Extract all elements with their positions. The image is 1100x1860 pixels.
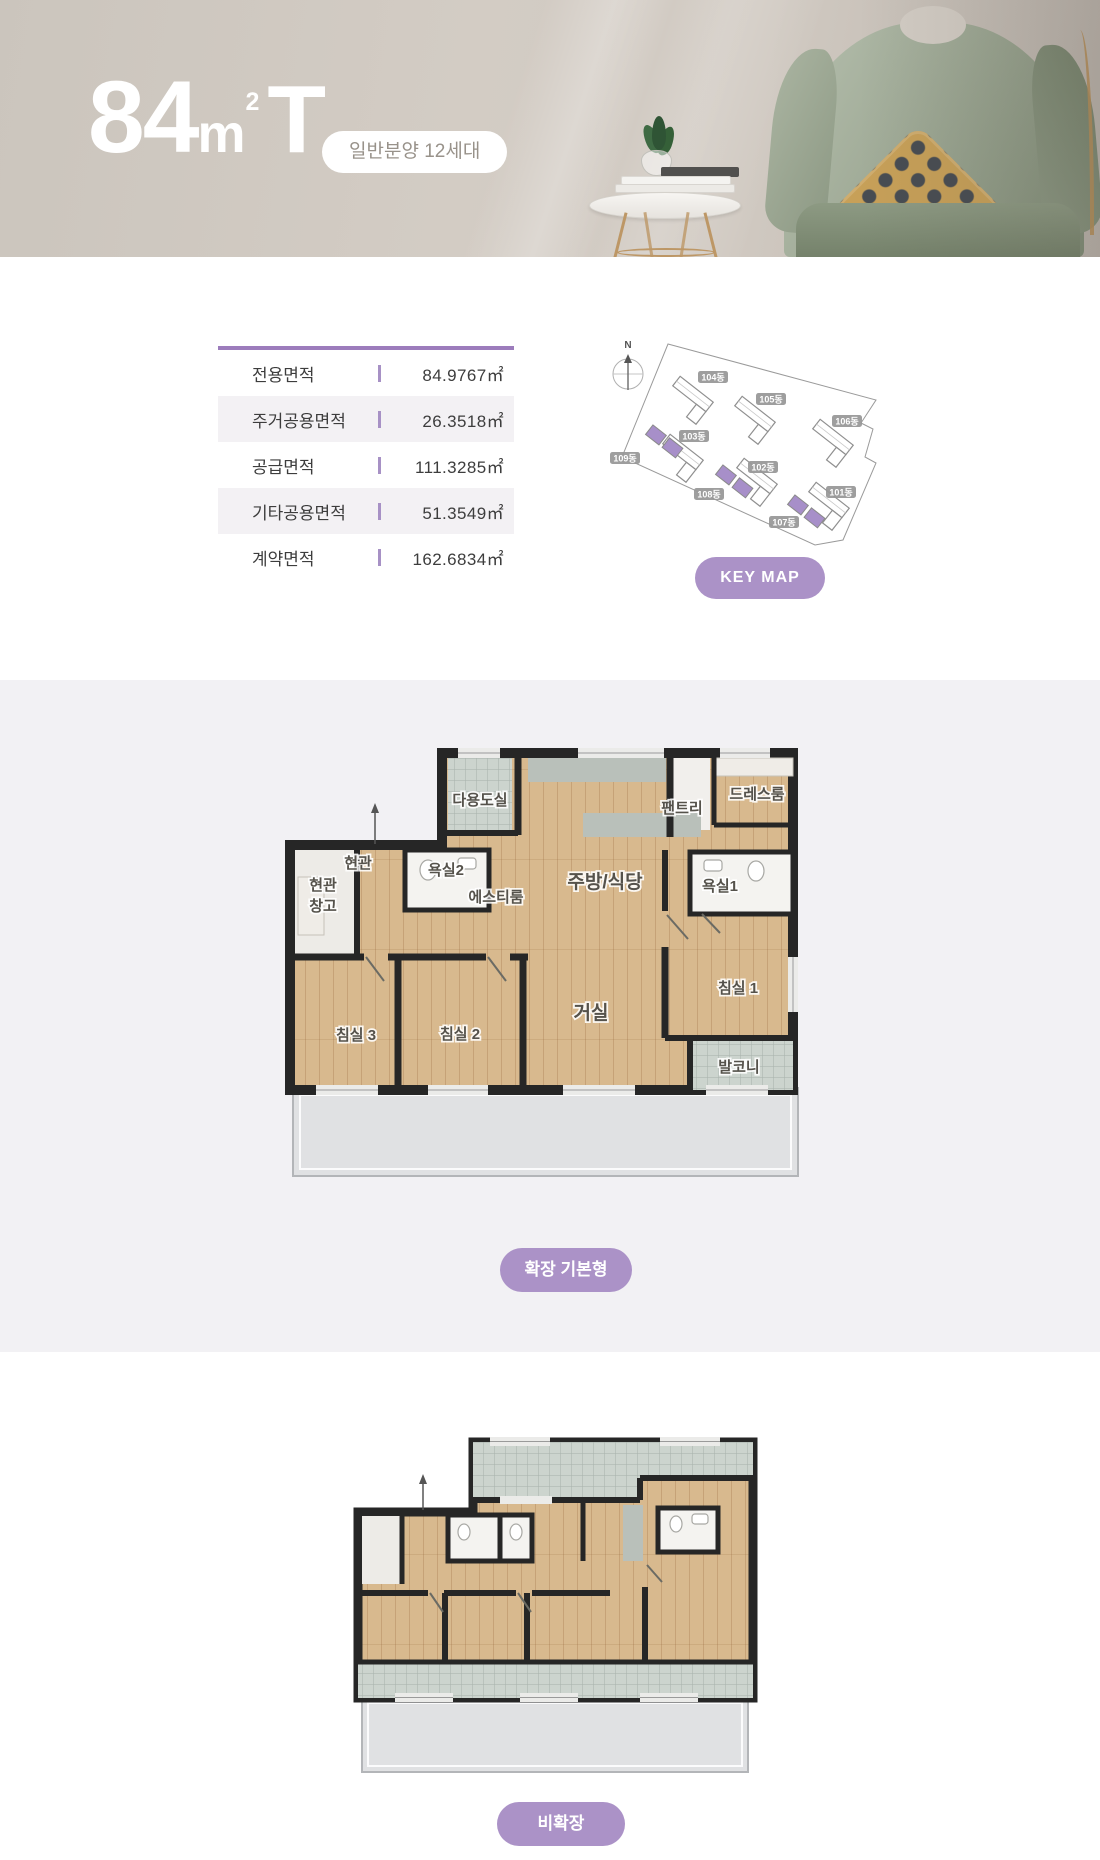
building-label-103: 103동 [679,430,709,442]
row-label: 주거공용면적 [252,407,364,432]
row-value: 84.9767㎡ [381,361,504,386]
room-label-pantry: 팬트리 [661,800,702,817]
building-label-102: 102동 [748,461,778,473]
building-label-104: 104동 [698,371,728,383]
row-label: 전용면적 [252,361,364,386]
row-value: 162.6834㎡ [381,545,504,570]
bathroom1 [658,1508,718,1552]
room-label-utility: 다용도실 [452,792,507,809]
room-label-bathroom2: 욕실2 [428,862,464,879]
floorplan-main-section: 다용도실 팬트리 드레스룸 현관 현관 창고 욕실2 에스티룸 주방/식당 욕실… [0,680,1100,1352]
kitchen-counter [528,758,666,782]
title-suffix: T [267,66,324,173]
page-title: 84m2T [88,66,324,168]
row-label: 공급면적 [252,453,364,478]
balcony-slab [362,1697,748,1772]
table-row: 주거공용면적 26.3518㎡ [218,396,514,442]
compass-icon: N [613,340,643,390]
building-label-107: 107동 [769,516,799,528]
title-number: 84 [88,60,197,174]
bathroom2 [448,1515,500,1561]
floorplan-sub [340,1420,760,1800]
area-table: 전용면적 84.9767㎡ 주거공용면적 26.3518㎡ 공급면적 111.3… [218,346,514,580]
keymap-button[interactable]: KEY MAP [695,557,825,599]
row-value: 111.3285㎡ [381,453,504,478]
dressroom-closet [716,758,793,776]
kitchen-counter [623,1505,643,1561]
building-label-106: 106동 [832,415,862,427]
svg-text:108동: 108동 [697,490,720,500]
row-label: 계약면적 [252,545,364,570]
balcony-slab [293,1088,798,1176]
svg-text:106동: 106동 [835,417,858,427]
keymap-figure: N [595,330,885,570]
room-label-bedroom3: 침실 3 [336,1027,376,1044]
area-info-section: 전용면적 84.9767㎡ 주거공용면적 26.3518㎡ 공급면적 111.3… [0,257,1100,680]
svg-text:101동: 101동 [829,488,852,498]
svg-text:109동: 109동 [613,454,636,464]
wall-arrow-marker [419,1474,427,1510]
room-label-entrance-storage-line2: 창고 [309,898,337,915]
svg-text:107동: 107동 [772,518,795,528]
room-label-kitchen-dining: 주방/식당 [567,871,643,893]
room-label-entrance-storage-line1: 현관 [309,877,337,894]
svg-text:105동: 105동 [759,395,782,405]
room-label-bedroom1: 침실 1 [718,980,758,997]
svg-text:104동: 104동 [701,373,724,383]
room-label-bedroom2: 침실 2 [440,1026,480,1043]
room-label-bathroom1: 욕실1 [702,878,738,895]
title-unit-superscript: 2 [245,88,259,116]
title-unit: m2 [197,104,259,164]
room-label-balcony: 발코니 [718,1059,759,1076]
building-label-101: 101동 [826,486,856,498]
compass-north-label: N [624,340,631,351]
svg-text:103동: 103동 [682,432,705,442]
table-row: 기타공용면적 51.3549㎡ [218,488,514,534]
table-row: 전용면적 84.9767㎡ [218,350,514,396]
entrance-zone [362,1516,402,1584]
row-value: 26.3518㎡ [381,407,504,432]
svg-text:102동: 102동 [751,463,774,473]
table-row: 공급면적 111.3285㎡ [218,442,514,488]
plan-type-badge-extended: 확장 기본형 [500,1248,632,1292]
row-label: 기타공용면적 [252,499,364,524]
wall-arrow-marker [371,803,379,844]
room-label-dressroom: 드레스룸 [729,786,784,803]
table-row: 계약면적 162.6834㎡ [218,534,514,580]
floorplan-sub-section: 비확장 [0,1352,1100,1860]
building-label-105: 105동 [756,393,786,405]
building-label-108: 108동 [694,488,724,500]
room-label-st-room: 에스티룸 [468,889,523,906]
room-label-entrance: 현관 [344,855,372,872]
bottom-balcony-floor [358,1662,753,1698]
row-value: 51.3549㎡ [381,499,504,524]
building-label-109: 109동 [610,452,640,464]
hero-banner: 84m2T 일반분양 12세대 [0,0,1100,257]
room-label-livingroom: 거실 [574,1002,609,1024]
sale-type-badge: 일반분양 12세대 [322,131,507,173]
plan-type-badge-non-extended: 비확장 [497,1802,625,1846]
page: 84m2T 일반분양 12세대 전용면적 84.9767㎡ 주거공용면적 26.… [0,0,1100,1860]
floorplan-main: 다용도실 팬트리 드레스룸 현관 현관 창고 욕실2 에스티룸 주방/식당 욕실… [278,725,818,1185]
